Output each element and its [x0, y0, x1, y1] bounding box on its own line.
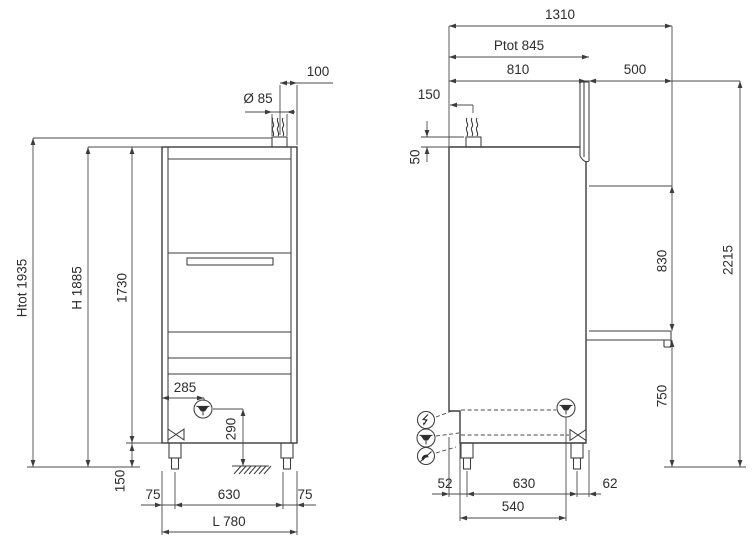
dim-hood-clearance: 830	[655, 250, 670, 273]
front-machine-outline	[162, 118, 297, 469]
dim-leg-inset-front: 62	[602, 476, 617, 491]
side-legs	[461, 443, 583, 469]
dim-body-height: 1730	[115, 273, 130, 303]
dim-shelf-depth: 500	[624, 62, 647, 77]
drawing-svg: Htot 1935 H 1885 1730 150 Ø 85 100	[0, 0, 754, 550]
dim-leg-inset-right: 75	[297, 487, 312, 502]
shutoff-valve-icon	[168, 429, 184, 440]
side-dimensions: 1310 Ptot 845 810 500 150 50 83	[408, 7, 746, 521]
dim-drain-height: 290	[224, 418, 239, 441]
dim-leg-inset-left: 75	[145, 487, 160, 502]
dim-body-depth: 810	[507, 62, 530, 77]
ground-hatch-icon	[232, 466, 271, 474]
shutoff-valve-icon	[570, 430, 586, 441]
front-legs	[169, 443, 293, 469]
dim-vent-offset: 100	[307, 64, 330, 79]
dim-vent-height: 50	[408, 149, 423, 164]
drain-connection-icon	[417, 429, 435, 447]
dim-drain-offset-side: 540	[502, 499, 525, 514]
dim-work-height: H 1885	[70, 266, 85, 310]
steam-vent-icon	[466, 118, 477, 136]
electrical-connection-icon	[418, 412, 435, 429]
open-hood-door	[580, 82, 589, 162]
steam-vent-icon	[272, 118, 283, 136]
dim-depth-with-door: Ptot 845	[494, 38, 544, 53]
dim-vent-offset-side: 150	[418, 87, 441, 102]
door-handle	[187, 258, 273, 265]
dim-shelf-height: 750	[655, 385, 670, 408]
side-machine-outline	[417, 82, 671, 469]
vent-chimney	[466, 137, 481, 147]
dim-total-height: Htot 1935	[15, 259, 30, 318]
vent-chimney	[272, 137, 287, 147]
technical-drawing: Htot 1935 H 1885 1730 150 Ø 85 100	[0, 0, 754, 550]
water-inlet-icon	[418, 448, 435, 465]
dim-leg-span: 630	[218, 487, 241, 502]
front-dimensions: Htot 1935 H 1885 1730 150 Ø 85 100	[15, 64, 333, 535]
dim-open-hood-height: 2215	[721, 245, 736, 275]
dim-leg-inset-back: 52	[437, 476, 452, 491]
side-shelf	[586, 331, 671, 347]
dim-total-width: L 780	[212, 514, 245, 529]
dim-drain-offset: 285	[174, 380, 197, 395]
drain-outlet-icon	[557, 399, 575, 417]
side-view: 1310 Ptot 845 810 500 150 50 83	[408, 7, 746, 521]
dim-leg-height: 150	[113, 470, 128, 493]
front-view: Htot 1935 H 1885 1730 150 Ø 85 100	[15, 64, 333, 535]
dim-vent-diameter: Ø 85	[243, 91, 272, 106]
dim-total-depth: 1310	[545, 7, 575, 22]
drain-outlet-icon	[194, 400, 212, 418]
dim-leg-span-side: 630	[513, 476, 536, 491]
